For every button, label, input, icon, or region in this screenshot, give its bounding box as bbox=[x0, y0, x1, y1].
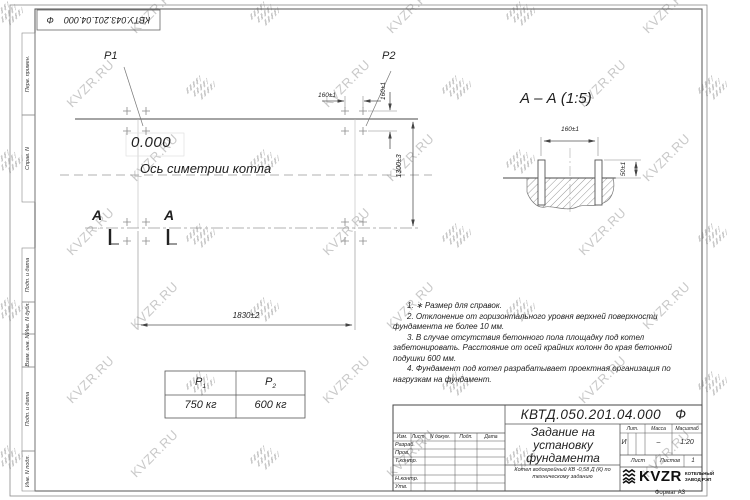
note-2: 2. Отклонение от горизонтального уровня … bbox=[393, 312, 704, 333]
corner-stamp-number: КВТУ.043.201.04.000 bbox=[64, 15, 150, 25]
tb-row-utv: Утв. bbox=[395, 483, 408, 491]
section-mark-a-right: А bbox=[164, 207, 174, 223]
level-mark: 0.000 bbox=[131, 134, 171, 151]
tb-lit-value: И bbox=[620, 438, 628, 448]
notes-block: 1. ∗ Размер для справок. 2. Отклонение о… bbox=[393, 301, 704, 385]
kvzr-logo-text: KVZR bbox=[639, 468, 682, 485]
plan-view-lines bbox=[60, 67, 432, 330]
tb-sheets-value: 1 bbox=[684, 457, 702, 465]
tb-mass-label: Масса bbox=[645, 425, 672, 433]
load-table-header-p1: P1 bbox=[165, 376, 236, 390]
tb-row-razrab: Разраб. bbox=[395, 441, 415, 449]
load-table-value-p2: 600 кг bbox=[236, 399, 305, 411]
note-4: 4. Фундамент под котел разрабатывает про… bbox=[393, 364, 704, 385]
dim-bolt-160-vertical: 160±1 bbox=[380, 74, 387, 108]
tb-row-nkontr: Н.контр. bbox=[395, 475, 418, 483]
tb-sheet-label: Лист bbox=[620, 457, 656, 465]
doc-number: КВТД.050.201.04.000Ф bbox=[505, 407, 702, 422]
section-mark-a-left: А bbox=[92, 207, 102, 223]
kvzr-logo: KVZR КОТЕЛЬНЫЙ ЗАВОД РЭП bbox=[622, 468, 714, 485]
dim-width-1830: 1830±2 bbox=[196, 311, 296, 320]
product-description: Котел водогрейный КВ -0,58 Д (К) по техн… bbox=[508, 467, 617, 481]
load-table-value-p1: 750 кг bbox=[165, 399, 236, 411]
tb-row-tkontr: Т.контр. bbox=[395, 457, 417, 465]
margin-label-vzam-inv: Взам. инв. N bbox=[22, 334, 35, 367]
corner-stamp: КВТУ.043.201.04.000Ф bbox=[37, 10, 160, 30]
load-table-header-p2: P2 bbox=[236, 376, 305, 390]
dim-bolt-160-horizontal: 160±1 bbox=[307, 92, 347, 99]
load-point-p2-label: P2 bbox=[382, 50, 395, 62]
margin-label-inv-podl: Инв. N подл. bbox=[22, 451, 35, 491]
tb-col-data: Дата bbox=[477, 433, 505, 441]
format-label: Формат А3 bbox=[630, 490, 710, 496]
note-3: 3. В случае отсутствия бетонного пола пл… bbox=[393, 333, 704, 365]
tb-col-ndokum: N докум. bbox=[425, 433, 455, 441]
doc-title: Задание на установку фундамента bbox=[518, 426, 608, 465]
tb-col-izm: Изм. bbox=[393, 433, 411, 441]
note-1: 1. ∗ Размер для справок. bbox=[393, 301, 704, 312]
tb-scale-label: Масштаб bbox=[672, 425, 702, 433]
tb-row-prov: Пров. bbox=[395, 449, 410, 457]
corner-stamp-suffix: Ф bbox=[47, 15, 54, 25]
tb-lit-label: Лит. bbox=[620, 425, 645, 433]
kvzr-coil-icon bbox=[622, 469, 637, 484]
margin-label-podp-data-2: Подп. и дата bbox=[22, 367, 35, 451]
tb-scale-value: 1:20 bbox=[672, 438, 702, 448]
kvzr-logo-caption: КОТЕЛЬНЫЙ ЗАВОД РЭП bbox=[685, 471, 714, 482]
section-dim-50: 50±1 bbox=[620, 152, 627, 186]
margin-label-inv-dubl: Инв. N дубл. bbox=[22, 302, 35, 334]
section-view-title: А – А (1:5) bbox=[520, 90, 592, 107]
section-dim-160: 160±1 bbox=[545, 126, 595, 133]
margin-label-perv-primen: Перв. примен. bbox=[22, 33, 35, 115]
load-point-p1-label: P1 bbox=[104, 50, 117, 62]
margin-label-podp-data-1: Подп. и дата bbox=[22, 248, 35, 302]
dim-height-1300: 1300±3 bbox=[396, 136, 403, 196]
boiler-symmetry-axis-label: Ось симетрии котла bbox=[140, 161, 271, 176]
tb-sheets-label: Листов bbox=[656, 457, 684, 465]
tb-col-podp: Подп. bbox=[455, 433, 477, 441]
sheet-border bbox=[10, 5, 707, 496]
tb-col-list: Лист bbox=[411, 433, 425, 441]
tb-mass-value: – bbox=[645, 438, 672, 448]
margin-label-sprav-n: Справ. N bbox=[22, 115, 35, 202]
